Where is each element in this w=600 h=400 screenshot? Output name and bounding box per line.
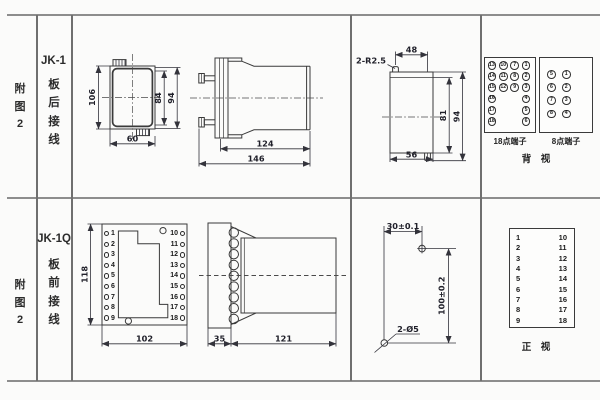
jk1q-left-pins: 1 2 3 4 5 6 7 8 9: [104, 229, 115, 324]
terminal-10: 10: [499, 61, 508, 70]
terminal-7: 7: [510, 61, 519, 70]
cell-16: 16: [559, 295, 567, 305]
svg-text:106: 106: [87, 89, 97, 106]
label-front-view: 正 视: [505, 339, 567, 353]
pin-2: 2: [104, 239, 115, 250]
pin-3: 3: [104, 250, 115, 261]
dim-94-cutout: 94: [431, 72, 467, 161]
svg-text:30±0.1: 30±0.1: [387, 221, 420, 231]
pin-9: 9: [104, 313, 115, 324]
pin-10: 10: [164, 229, 185, 240]
terminal-11: 11: [499, 72, 508, 81]
cell-10: 10: [559, 233, 567, 243]
wiring-char: 板: [38, 76, 70, 94]
terminal-5: 5: [522, 106, 531, 115]
grid-bottom-border: [7, 380, 600, 382]
pin-7: 7: [104, 292, 115, 303]
svg-text:60: 60: [127, 134, 139, 144]
terminal-column-1-6: 1 2 3 4 5 6: [522, 61, 531, 129]
cell-11: 11: [559, 243, 567, 253]
cutout-outline: [390, 67, 433, 161]
wiring-char: 板: [38, 256, 70, 274]
pin-16: 16: [164, 292, 185, 303]
cell-5: 5: [516, 274, 520, 284]
jk1q-side-plate: [208, 223, 231, 328]
terminal-1: 1: [522, 61, 531, 70]
terminal-13: 13: [488, 61, 497, 70]
label-8pt-terminal: 8点端子: [540, 136, 592, 147]
dim-102: 102: [102, 326, 187, 347]
terminal-7: 7: [547, 96, 556, 105]
cell-4: 4: [516, 264, 520, 274]
grid-middle-border: [7, 197, 600, 199]
terminal-3: 3: [562, 96, 571, 105]
dim-48: 48: [396, 44, 428, 71]
jk1-panel-cutout-drawing: 2-R2.5 48 81 94 56: [352, 40, 480, 180]
cell-7: 7: [516, 295, 520, 305]
pin-15: 15: [164, 281, 185, 292]
terminal-2: 2: [522, 72, 531, 81]
terminal-8: 8: [547, 110, 556, 119]
terminal-box-8pt: 5 6 7 8 1 2 3 4: [539, 57, 593, 133]
dim-30: 30±0.1: [384, 221, 422, 340]
jk1q-mount-holes: [125, 228, 166, 325]
wiring-label-rear: 板 后 接 线: [38, 76, 70, 150]
note-2-r2-5: 2-R2.5: [356, 56, 395, 69]
pin-17: 17: [164, 302, 185, 313]
svg-text:56: 56: [406, 149, 418, 159]
terminal-3: 3: [522, 83, 531, 92]
dim-56: 56: [390, 149, 433, 162]
terminal-18: 18: [488, 117, 497, 126]
wiring-char: 线: [38, 311, 70, 329]
terminal-6: 6: [547, 83, 556, 92]
front-view-terminal-table: 1 2 3 4 5 6 7 8 9 10 11 12 13 14 15 16 1…: [509, 228, 575, 328]
svg-text:2-Ø5: 2-Ø5: [397, 324, 419, 334]
drill-hole-bottom: 2-Ø5: [375, 324, 421, 353]
dim-121: 121: [231, 314, 336, 347]
terminal-9: 9: [510, 83, 519, 92]
grid-divider-4: [480, 15, 482, 381]
jk1q-drill-plan-drawing: 30±0.1 100±0.2 2-Ø5: [352, 218, 480, 358]
terminal-box-18pt: 13 14 15 16 17 18 10 11 12 7 8 9 1 2 3 4…: [484, 57, 536, 133]
pin-6: 6: [104, 281, 115, 292]
grid-divider-2: [71, 15, 73, 381]
dim-81: 81: [433, 78, 453, 153]
wiring-char: 前: [38, 274, 70, 292]
svg-text:2-R2.5: 2-R2.5: [356, 56, 386, 66]
terminal-12: 12: [499, 83, 508, 92]
jk1-front-view-drawing: 106 84 94 60: [80, 40, 190, 170]
terminal-17: 17: [488, 106, 497, 115]
svg-text:35: 35: [214, 333, 226, 343]
wiring-char: 接: [38, 113, 70, 131]
dim-118: 118: [79, 224, 102, 325]
svg-text:121: 121: [275, 333, 292, 343]
label-18pt-terminal: 18点端子: [482, 136, 538, 147]
pin-14: 14: [164, 271, 185, 282]
terminal-5: 5: [547, 70, 556, 79]
pin-5: 5: [104, 271, 115, 282]
pin-12: 12: [164, 250, 185, 261]
cell-18: 18: [559, 316, 567, 326]
jk1q-right-pins: 10 11 12 13 14 15 16 17 18: [164, 229, 185, 324]
terminal-column-7-9: 7 8 9: [510, 61, 519, 129]
svg-text:124: 124: [256, 138, 273, 148]
cell-13: 13: [559, 264, 567, 274]
table-column-10-18: 10 11 12 13 14 15 16 17 18: [559, 233, 567, 327]
svg-text:118: 118: [79, 266, 89, 283]
pin-1: 1: [104, 229, 115, 240]
svg-text:146: 146: [247, 153, 264, 163]
terminal-column-5-8: 5 6 7 8: [547, 70, 556, 132]
figure-char: 2: [8, 312, 32, 330]
pin-4: 4: [104, 260, 115, 271]
dim-146: 146: [199, 129, 310, 167]
grid-top-border: [7, 14, 600, 16]
cell-1: 1: [516, 233, 520, 243]
figure-char: 2: [8, 116, 32, 134]
terminal-screw-top: [199, 74, 215, 84]
figure-char: 附: [8, 277, 32, 295]
terminal-16: 16: [488, 95, 497, 104]
cell-15: 15: [559, 285, 567, 295]
terminal-4: 4: [522, 95, 531, 104]
dim-35: 35: [208, 329, 231, 347]
figure-char: 图: [8, 99, 32, 117]
pin-11: 11: [164, 239, 185, 250]
svg-text:102: 102: [136, 333, 153, 343]
pin-18: 18: [164, 313, 185, 324]
terminal-2: 2: [562, 83, 571, 92]
drill-hole-top: [417, 244, 456, 254]
svg-text:84: 84: [153, 92, 163, 104]
cell-2: 2: [516, 243, 520, 253]
terminal-4: 4: [562, 110, 571, 119]
terminal-1: 1: [562, 70, 571, 79]
jk1-side-view-drawing: 124 146: [185, 40, 330, 170]
cell-9: 9: [516, 316, 520, 326]
cell-8: 8: [516, 305, 520, 315]
label-back-view: 背 视: [505, 151, 567, 165]
terminal-15: 15: [488, 83, 497, 92]
figure-label-row2: 附 图 2: [8, 277, 32, 330]
terminal-8: 8: [510, 72, 519, 81]
figure-label-row1: 附 图 2: [8, 81, 32, 134]
terminal-column-10-12: 10 11 12: [499, 61, 508, 129]
svg-text:100±0.2: 100±0.2: [437, 277, 447, 315]
model-label-jk1q: JK-1Q: [35, 233, 73, 245]
terminal-column-1-4: 1 2 3 4: [562, 70, 571, 132]
jk1q-side-view-drawing: 35 121: [198, 218, 348, 350]
svg-text:94: 94: [166, 92, 176, 104]
cell-14: 14: [559, 274, 567, 284]
svg-text:94: 94: [451, 111, 461, 123]
cell-6: 6: [516, 285, 520, 295]
table-column-1-9: 1 2 3 4 5 6 7 8 9: [516, 233, 520, 327]
pin-13: 13: [164, 260, 185, 271]
terminal-6: 6: [522, 117, 531, 126]
svg-text:81: 81: [438, 110, 448, 122]
wiring-label-front: 板 前 接 线: [38, 256, 70, 330]
wiring-char: 线: [38, 131, 70, 149]
cell-17: 17: [559, 305, 567, 315]
figure-char: 附: [8, 81, 32, 99]
terminal-screw-bottom: [199, 118, 215, 128]
pin-8: 8: [104, 302, 115, 313]
wiring-char: 接: [38, 293, 70, 311]
dim-124: 124: [221, 131, 311, 152]
wiring-char: 后: [38, 94, 70, 112]
figure-char: 图: [8, 295, 32, 313]
model-label-jk1: JK-1: [37, 55, 70, 67]
cell-3: 3: [516, 254, 520, 264]
svg-text:48: 48: [406, 44, 418, 54]
cell-12: 12: [559, 254, 567, 264]
terminal-14: 14: [488, 72, 497, 81]
terminal-column-13-18: 13 14 15 16 17 18: [488, 61, 497, 129]
